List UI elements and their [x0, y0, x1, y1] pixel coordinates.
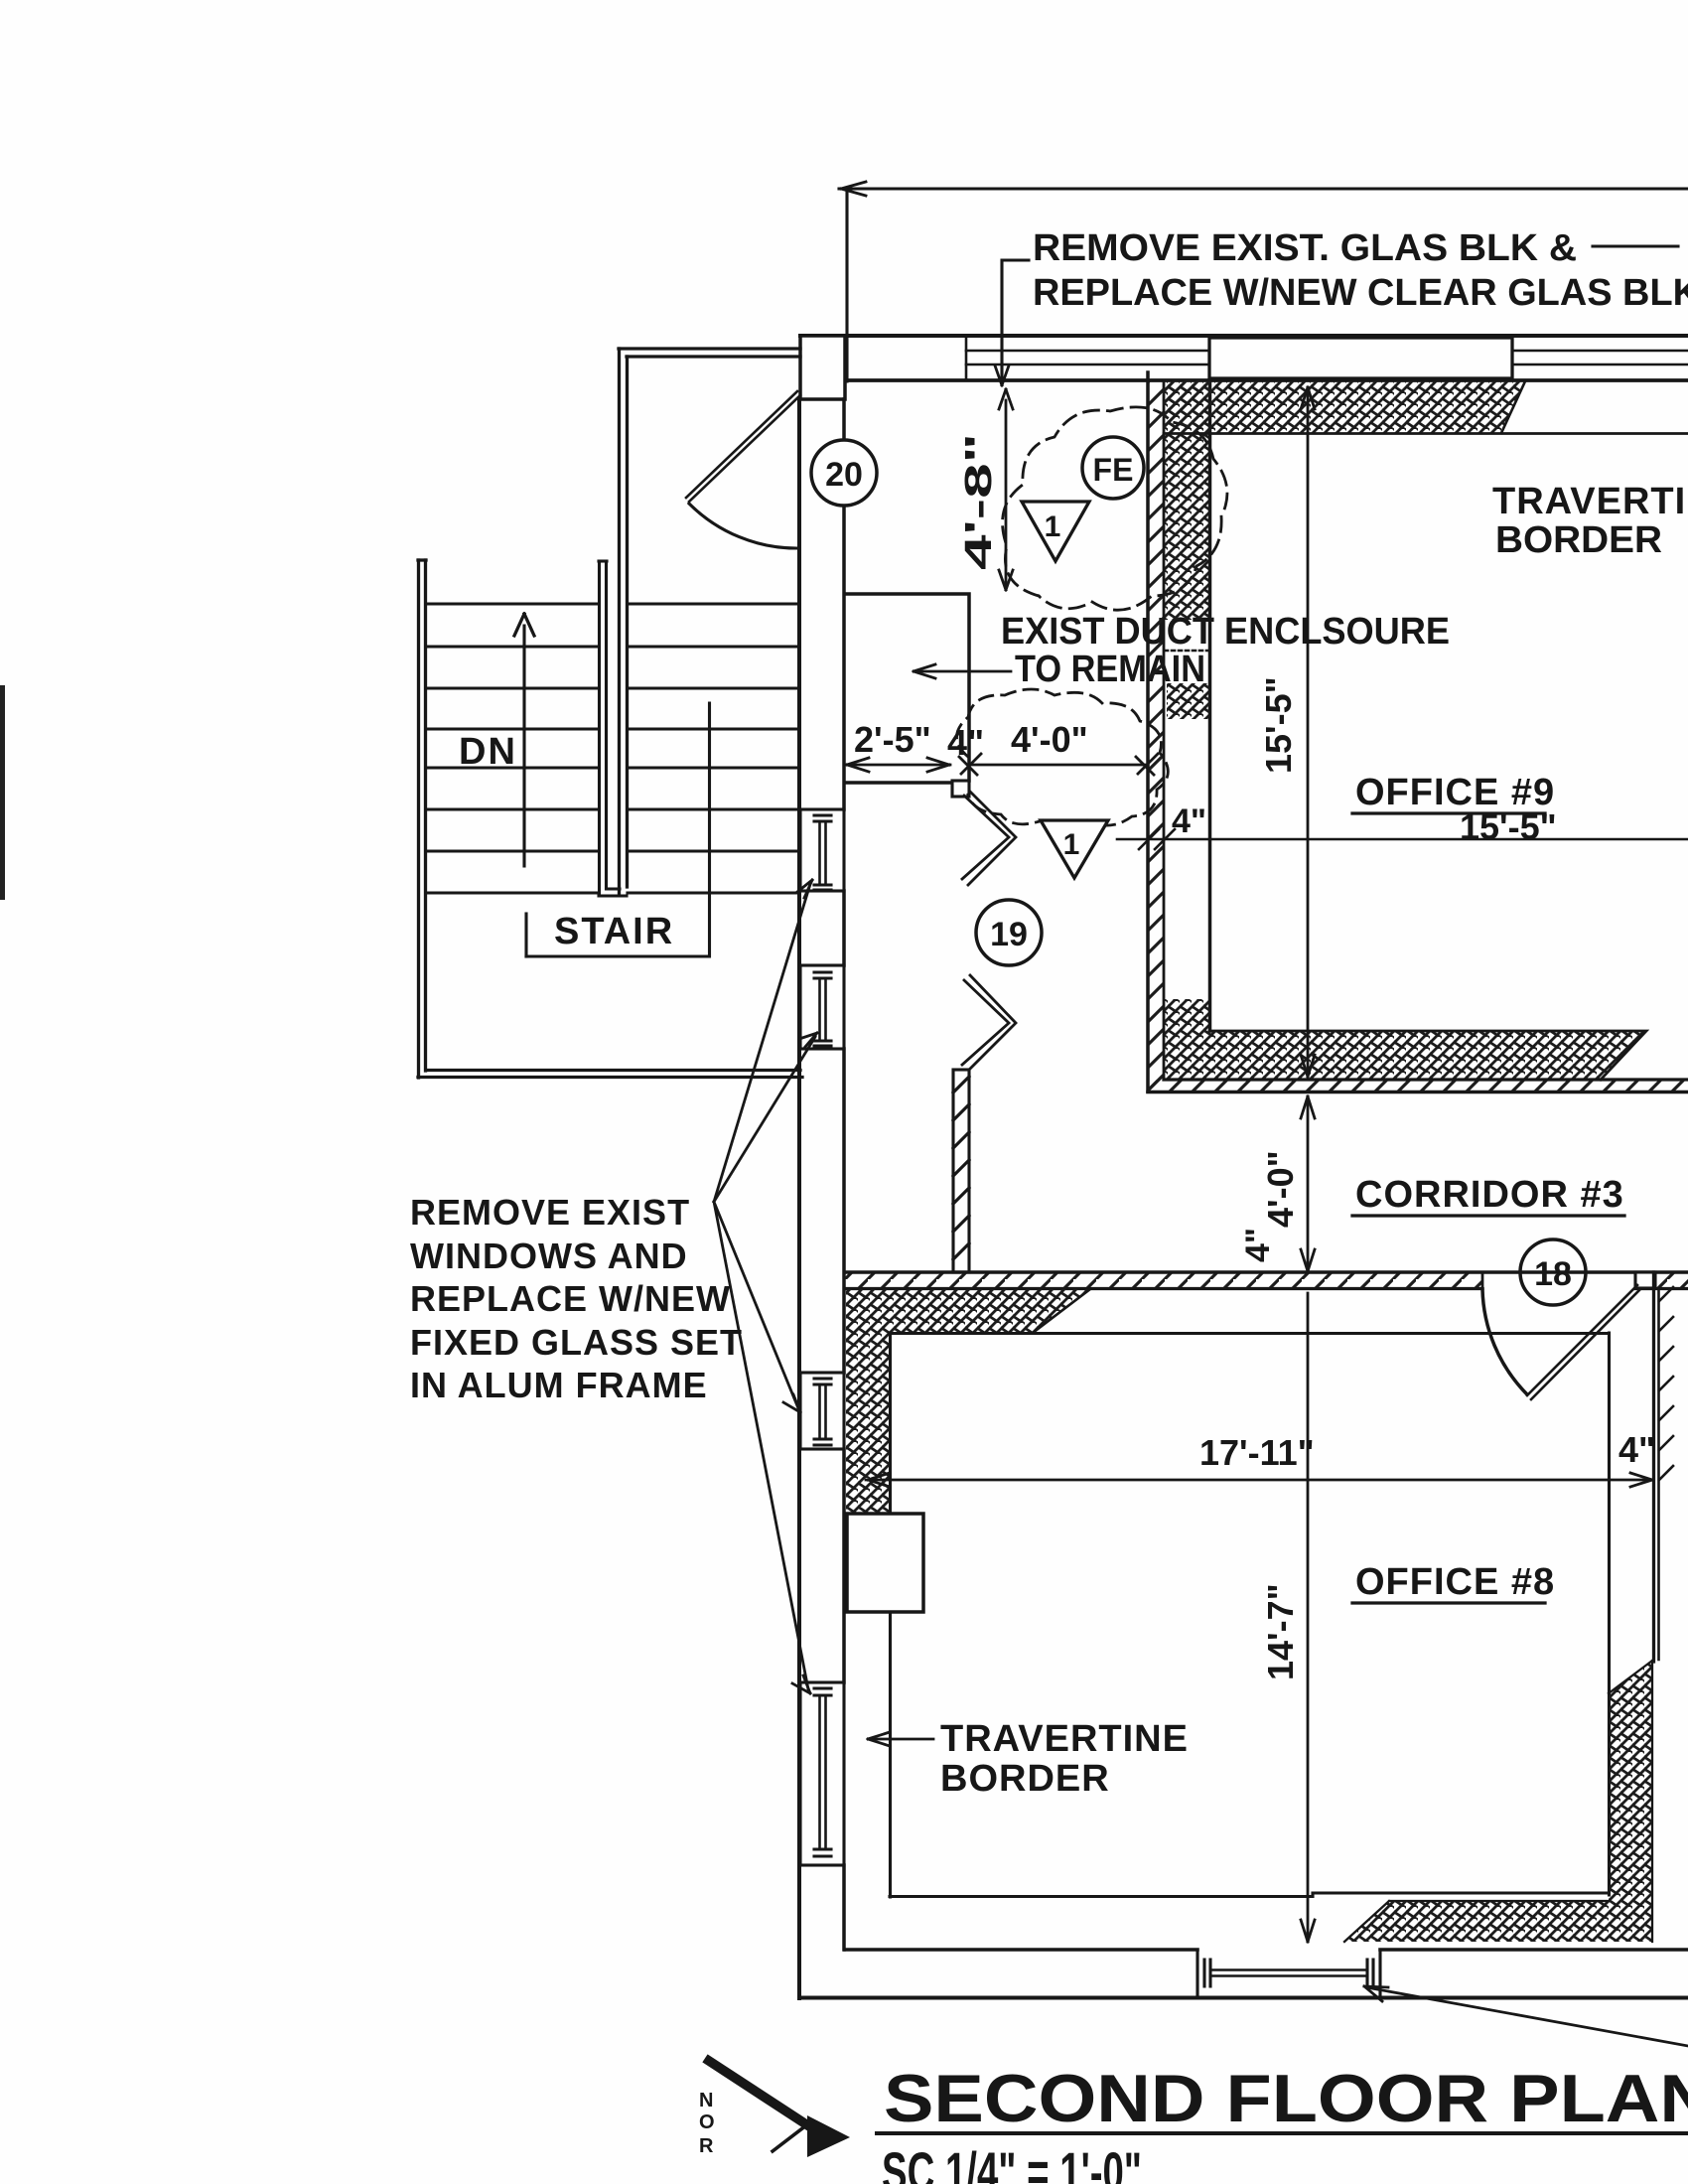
svg-text:17'-11": 17'-11": [1199, 1432, 1315, 1473]
svg-text:2'-5": 2'-5": [854, 719, 931, 760]
svg-text:4": 4": [1618, 1429, 1655, 1470]
svg-text:CORRIDOR #3: CORRIDOR #3: [1355, 1174, 1624, 1216]
svg-text:4": 4": [1239, 1228, 1277, 1262]
svg-text:SECOND FLOOR PLAN: SECOND FLOOR PLAN: [884, 2061, 1688, 2136]
svg-text:IN ALUM FRAME: IN ALUM FRAME: [410, 1365, 708, 1405]
svg-text:TRAVERTINE: TRAVERTINE: [1492, 481, 1688, 522]
svg-text:WINDOWS AND: WINDOWS AND: [410, 1236, 688, 1276]
svg-text:4": 4": [1172, 802, 1206, 840]
svg-text:18: 18: [1534, 1255, 1572, 1293]
svg-text:OFFICE #8: OFFICE #8: [1355, 1561, 1555, 1603]
svg-text:20: 20: [825, 456, 863, 494]
svg-text:4'-8": 4'-8": [958, 433, 1000, 570]
svg-text:BORDER: BORDER: [1495, 519, 1662, 561]
svg-text:15'-5": 15'-5": [1460, 806, 1557, 847]
svg-text:1: 1: [1063, 828, 1080, 861]
svg-text:REMOVE EXIST: REMOVE EXIST: [410, 1192, 690, 1233]
svg-text:15'-5": 15'-5": [1258, 676, 1299, 774]
svg-text:SC 1/4" = 1'-0": SC 1/4" = 1'-0": [882, 2140, 1142, 2184]
svg-text:REPLACE W/NEW CLEAR GLAS BLK: REPLACE W/NEW CLEAR GLAS BLK: [1033, 272, 1688, 314]
svg-text:FIXED GLASS SET: FIXED GLASS SET: [410, 1322, 743, 1363]
svg-text:14'-7": 14'-7": [1260, 1583, 1301, 1680]
svg-text:19: 19: [990, 916, 1028, 953]
svg-text:DN: DN: [459, 731, 517, 773]
svg-text:REMOVE EXIST. GLAS BLK &: REMOVE EXIST. GLAS BLK &: [1033, 227, 1577, 269]
svg-text:REPLACE W/NEW: REPLACE W/NEW: [410, 1278, 731, 1319]
svg-text:R: R: [699, 2135, 714, 2157]
svg-text:FE: FE: [1093, 452, 1134, 488]
svg-text:EXIST DUCT ENCLSOURE: EXIST DUCT ENCLSOURE: [1001, 611, 1450, 653]
svg-text:1: 1: [1045, 510, 1061, 543]
svg-text:O: O: [699, 2111, 715, 2133]
svg-text:N: N: [699, 2090, 713, 2111]
svg-text:STAIR: STAIR: [554, 911, 674, 952]
svg-text:TRAVERTINE: TRAVERTINE: [940, 1718, 1189, 1760]
svg-text:4'-0": 4'-0": [1011, 719, 1088, 760]
svg-text:BORDER: BORDER: [940, 1758, 1110, 1800]
svg-text:4'-0": 4'-0": [1260, 1150, 1301, 1228]
